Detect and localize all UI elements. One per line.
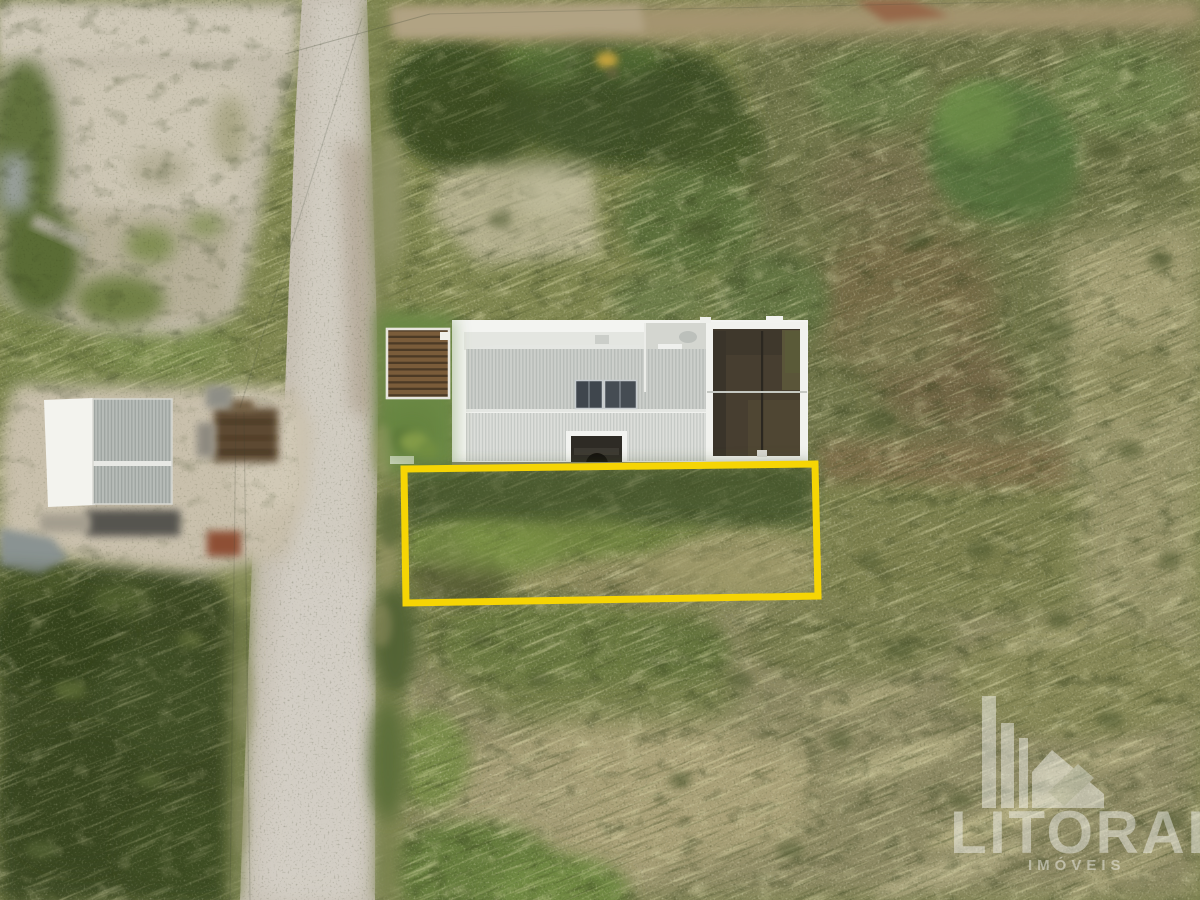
svg-text:IMÓVEIS: IMÓVEIS xyxy=(1028,856,1126,874)
svg-text:LITORAL: LITORAL xyxy=(950,799,1200,866)
